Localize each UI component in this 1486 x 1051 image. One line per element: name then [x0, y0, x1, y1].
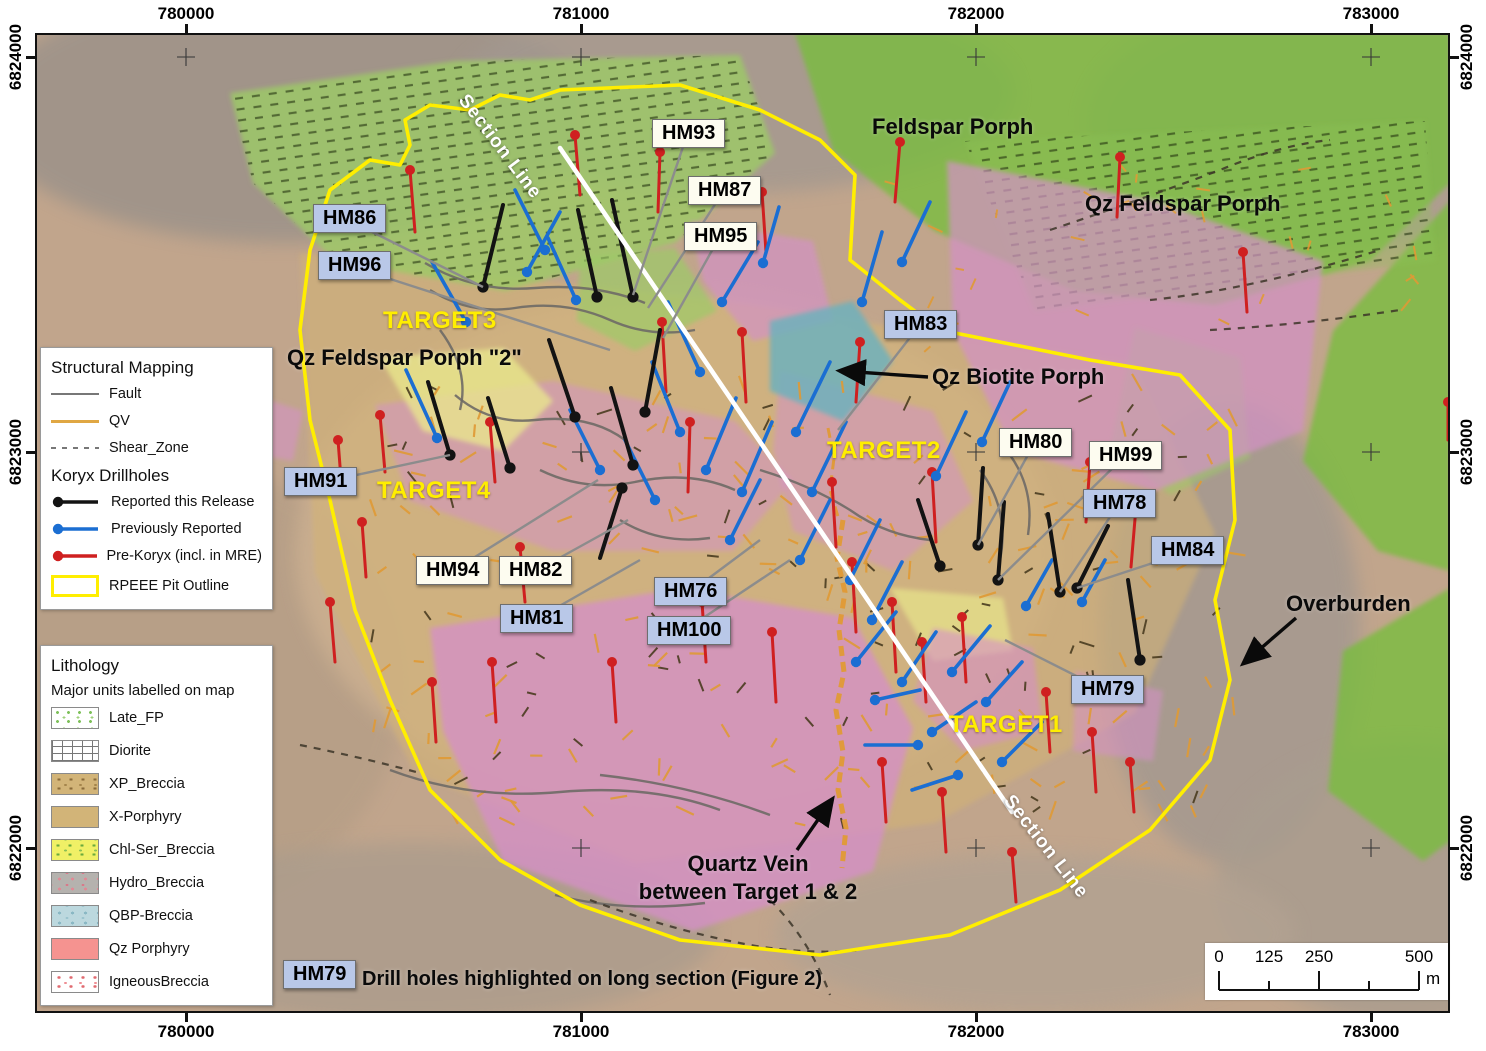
y-axis-label-right: 6824000	[1457, 24, 1477, 90]
drillhole-black-sample	[51, 495, 101, 509]
callout-hm76: HM76	[654, 577, 727, 606]
quartz-vein-label-line1: Quartz Vein	[632, 850, 864, 878]
legend-item-fault: Fault	[51, 386, 262, 402]
legend-item-chl_ser: Chl-Ser_Breccia	[51, 839, 262, 861]
scale-bar-number: 0	[1214, 947, 1223, 967]
callout-hm95: HM95	[684, 222, 757, 251]
legend-lithology-subtitle: Major units labelled on map	[51, 682, 262, 699]
geology-label: Feldspar Porph	[872, 114, 1033, 140]
x-axis-label-top: 783000	[1343, 4, 1400, 24]
callout-hm78: HM78	[1083, 489, 1156, 518]
legend-item-label: Qz Porphyry	[109, 941, 190, 957]
x-axis-label-bottom: 780000	[158, 1022, 215, 1042]
callout-hm100: HM100	[647, 616, 731, 645]
geology-label: Qz Feldspar Porph	[1085, 191, 1281, 217]
x-axis-label-bottom: 781000	[553, 1022, 610, 1042]
legend-item-label: Fault	[109, 386, 141, 402]
legend-item-qv: QV	[51, 413, 262, 429]
legend-lithology-items: Late_FPDioriteXP_BrecciaX-PorphyryChl-Se…	[51, 707, 262, 993]
callout-hm96: HM96	[318, 251, 391, 280]
quartz-vein-label: Quartz Vein between Target 1 & 2	[632, 850, 864, 905]
callout-hm84: HM84	[1151, 536, 1224, 565]
callout-hm87: HM87	[688, 176, 761, 205]
callout-hm79: HM79	[1071, 675, 1144, 704]
callout-hm80: HM80	[999, 428, 1072, 457]
legend-lithology-title: Lithology	[51, 656, 262, 676]
callout-hm81: HM81	[500, 604, 573, 633]
legend-item-label: Diorite	[109, 743, 151, 759]
x-axis-label-bottom: 782000	[948, 1022, 1005, 1042]
legend-item-black: Reported this Release	[51, 494, 262, 510]
y-axis-label-right: 6823000	[1457, 419, 1477, 485]
y-axis-label-left: 6822000	[6, 815, 26, 881]
y-axis-tick-left	[26, 56, 35, 59]
x-axis-label-top: 781000	[553, 4, 610, 24]
legend-item-label: Pre-Koryx (incl. in MRE)	[107, 548, 263, 564]
legend-structural-title: Structural Mapping	[51, 358, 262, 378]
legend-item-qbp: QBP-Breccia	[51, 905, 262, 927]
legend-item-label: Chl-Ser_Breccia	[109, 842, 215, 858]
legend-drillholes-items: Reported this ReleasePreviously Reported…	[51, 494, 262, 597]
y-axis-tick-right	[1450, 451, 1459, 454]
qv-line-sample	[51, 420, 99, 423]
legend-item-xp_breccia: XP_Breccia	[51, 773, 262, 795]
swatch-igneous	[51, 971, 99, 993]
target-label-target4: TARGET4	[377, 477, 491, 505]
geology-label: Qz Feldspar Porph "2"	[287, 345, 522, 371]
swatch-chl_ser	[51, 839, 99, 861]
legend-item-label: Reported this Release	[111, 494, 254, 510]
legend-item-shear: Shear_Zone	[51, 440, 262, 456]
legend-item-label: QBP-Breccia	[109, 908, 193, 924]
y-axis-tick-left	[26, 451, 35, 454]
note-text: Drill holes highlighted on long section …	[362, 968, 822, 991]
x-axis-tick-top	[580, 24, 583, 33]
x-axis-tick-top	[185, 24, 188, 33]
target-label-target1: TARGET1	[949, 711, 1063, 739]
geology-map-figure: 7800007800007810007810007820007820007830…	[0, 0, 1486, 1051]
legend-item-label: RPEEE Pit Outline	[109, 578, 229, 594]
x-axis-tick-top	[975, 24, 978, 33]
callout-hm94: HM94	[416, 556, 489, 585]
drillhole-red-sample	[51, 549, 97, 563]
y-axis-label-right: 6822000	[1457, 815, 1477, 881]
scale-bar-unit: m	[1426, 969, 1440, 989]
legend-item-label: IgneousBreccia	[109, 974, 209, 990]
swatch-late_fp	[51, 707, 99, 729]
geology-label: Overburden	[1286, 591, 1411, 617]
legend-item-label: XP_Breccia	[109, 776, 185, 792]
callout-hm86: HM86	[313, 204, 386, 233]
x-axis-label-top: 780000	[158, 4, 215, 24]
swatch-qz_porphyry	[51, 938, 99, 960]
x-axis-tick-bottom	[185, 1013, 188, 1022]
note-hm79-box: HM79	[283, 960, 356, 989]
target-label-target3: TARGET3	[383, 307, 497, 335]
legend-drillholes-title: Koryx Drillholes	[51, 466, 262, 486]
legend-item-x_porphyry: X-Porphyry	[51, 806, 262, 828]
scale-bar-number: 500	[1405, 947, 1433, 967]
legend-item-late_fp: Late_FP	[51, 707, 262, 729]
x-axis-label-bottom: 783000	[1343, 1022, 1400, 1042]
callout-hm99: HM99	[1089, 441, 1162, 470]
drillhole-blue-sample	[51, 522, 101, 536]
shear-zone-sample	[51, 447, 99, 449]
y-axis-tick-left	[26, 847, 35, 850]
callout-hm91: HM91	[284, 467, 357, 496]
legend-structural-items: FaultQVShear_Zone	[51, 386, 262, 456]
swatch-x_porphyry	[51, 806, 99, 828]
legend-item-hydro: Hydro_Breccia	[51, 872, 262, 894]
y-axis-tick-right	[1450, 56, 1459, 59]
legend-item-red: Pre-Koryx (incl. in MRE)	[51, 548, 262, 564]
legend-item-qz_porphyry: Qz Porphyry	[51, 938, 262, 960]
x-axis-tick-bottom	[1370, 1013, 1373, 1022]
callout-hm93: HM93	[652, 119, 725, 148]
scale-bar: 0125250500 m	[1205, 943, 1448, 1000]
legend-item-label: QV	[109, 413, 130, 429]
y-axis-label-left: 6823000	[6, 419, 26, 485]
swatch-qbp	[51, 905, 99, 927]
callout-hm83: HM83	[884, 310, 957, 339]
target-label-target2: TARGET2	[827, 437, 941, 465]
scale-bar-number: 250	[1305, 947, 1333, 967]
x-axis-tick-bottom	[975, 1013, 978, 1022]
swatch-xp_breccia	[51, 773, 99, 795]
legend-item-diorite: Diorite	[51, 740, 262, 762]
swatch-diorite	[51, 740, 99, 762]
legend-item-label: Late_FP	[109, 710, 164, 726]
swatch-hydro	[51, 872, 99, 894]
legend-lithology: Lithology Major units labelled on map La…	[40, 645, 273, 1006]
legend-item-label: Previously Reported	[111, 521, 242, 537]
y-axis-tick-right	[1450, 847, 1459, 850]
legend-item-pit: RPEEE Pit Outline	[51, 575, 262, 597]
pit-outline-sample	[51, 575, 99, 597]
legend-structural-mapping: Structural Mapping FaultQVShear_Zone Kor…	[40, 347, 273, 610]
legend-item-blue: Previously Reported	[51, 521, 262, 537]
quartz-vein-label-line2: between Target 1 & 2	[632, 878, 864, 906]
legend-item-label: Hydro_Breccia	[109, 875, 204, 891]
legend-item-label: Shear_Zone	[109, 440, 189, 456]
callout-hm82: HM82	[499, 556, 572, 585]
legend-item-igneous: IgneousBreccia	[51, 971, 262, 993]
fault-line-sample	[51, 393, 99, 395]
scale-bar-number: 125	[1255, 947, 1283, 967]
x-axis-label-top: 782000	[948, 4, 1005, 24]
y-axis-label-left: 6824000	[6, 24, 26, 90]
legend-item-label: X-Porphyry	[109, 809, 182, 825]
x-axis-tick-bottom	[580, 1013, 583, 1022]
geology-label: Qz Biotite Porph	[932, 364, 1104, 390]
x-axis-tick-top	[1370, 24, 1373, 33]
